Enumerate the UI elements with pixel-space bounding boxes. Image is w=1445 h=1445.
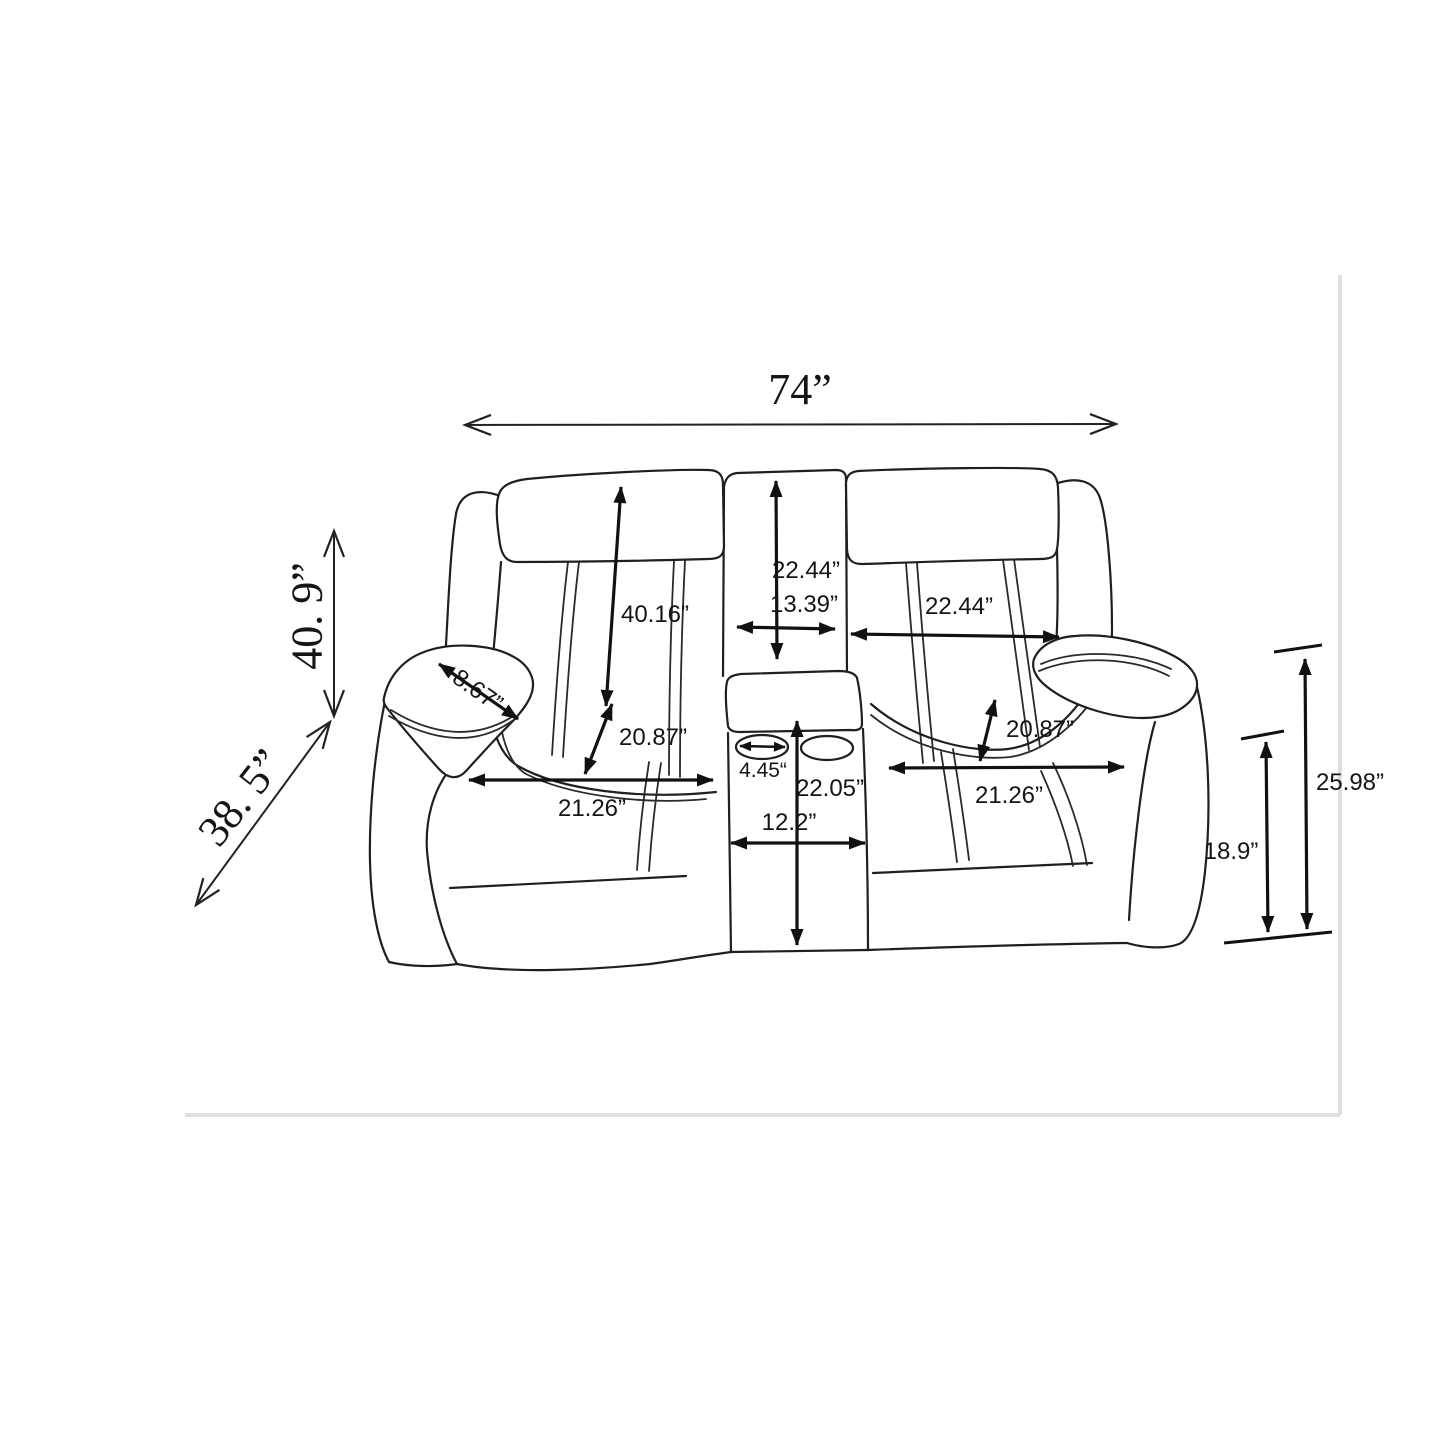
overall-width-label: 74” — [768, 365, 832, 414]
right-arm-inner-band — [1041, 771, 1073, 866]
right-back-width-arrow — [851, 634, 1059, 637]
floor-tick — [1224, 932, 1332, 943]
right-armrest-pad — [1033, 635, 1197, 718]
right-seat-width-label: 21.26” — [975, 782, 1043, 809]
right-seat-depth-arrow — [980, 700, 995, 761]
right-back-width-label: 22.44” — [925, 593, 993, 620]
console-back-width-label: 13.39” — [770, 591, 838, 618]
loveseat-dimension-diagram: 74” 40. 9” 38. 5” 40.16” 22.44” 13.39” 2… — [0, 0, 1445, 1445]
left-skirt-bottom — [457, 952, 731, 970]
console-lid — [726, 671, 862, 732]
left-headrest — [497, 470, 724, 562]
overall-height-label: 40. 9” — [282, 562, 331, 670]
console-backrest-top — [724, 470, 846, 486]
diagram-canvas: 74” 40. 9” 38. 5” 40.16” 22.44” 13.39” 2… — [0, 0, 1445, 1445]
arm-height-label: 25.98” — [1316, 769, 1384, 796]
left-arm-outer-edge — [370, 701, 389, 962]
cup-holder-width-arrow — [740, 746, 785, 747]
arm-height-arrow — [1305, 659, 1307, 929]
cup-holder-right — [801, 736, 853, 760]
left-seat-depth-label: 20.87” — [619, 724, 687, 751]
right-skirt-bottom — [868, 943, 1127, 950]
seat-height-label: 18.9” — [1204, 838, 1259, 865]
console-width-label: 12.2” — [762, 809, 817, 836]
right-arm-outer-edge — [1127, 687, 1208, 947]
left-seat-depth-arrow — [585, 704, 612, 774]
right-backrest-pleat — [906, 563, 923, 763]
left-arm-bottom — [389, 962, 457, 966]
console-back-width-arrow — [737, 627, 835, 629]
right-seat-width-arrow — [889, 767, 1124, 768]
right-seat-skirt-top — [873, 863, 1092, 873]
left-seat-pleat — [637, 762, 649, 870]
left-seat-width-label: 21.26” — [558, 795, 626, 822]
right-headrest — [846, 468, 1059, 564]
right-arm-inner-edge — [1129, 722, 1155, 920]
console-height-label: 22.05” — [796, 775, 864, 802]
seat-height-arrow — [1266, 742, 1268, 932]
cup-holder-width-label: 4.45“ — [739, 759, 787, 782]
overall-depth-label: 38. 5” — [188, 740, 293, 855]
left-arm-inner-edge — [427, 769, 457, 964]
sofa-drawing — [370, 468, 1209, 970]
console-back-height-label: 22.44” — [772, 557, 840, 584]
left-seat-skirt-top — [450, 876, 686, 888]
right-backrest-edge — [1056, 549, 1058, 645]
overall-width-arrow — [465, 424, 1116, 425]
arm-height-tick — [1274, 645, 1322, 652]
back-height-label: 40.16” — [621, 601, 689, 628]
right-seat-depth-label: 20.87” — [1006, 716, 1074, 743]
seat-height-tick — [1241, 731, 1284, 739]
